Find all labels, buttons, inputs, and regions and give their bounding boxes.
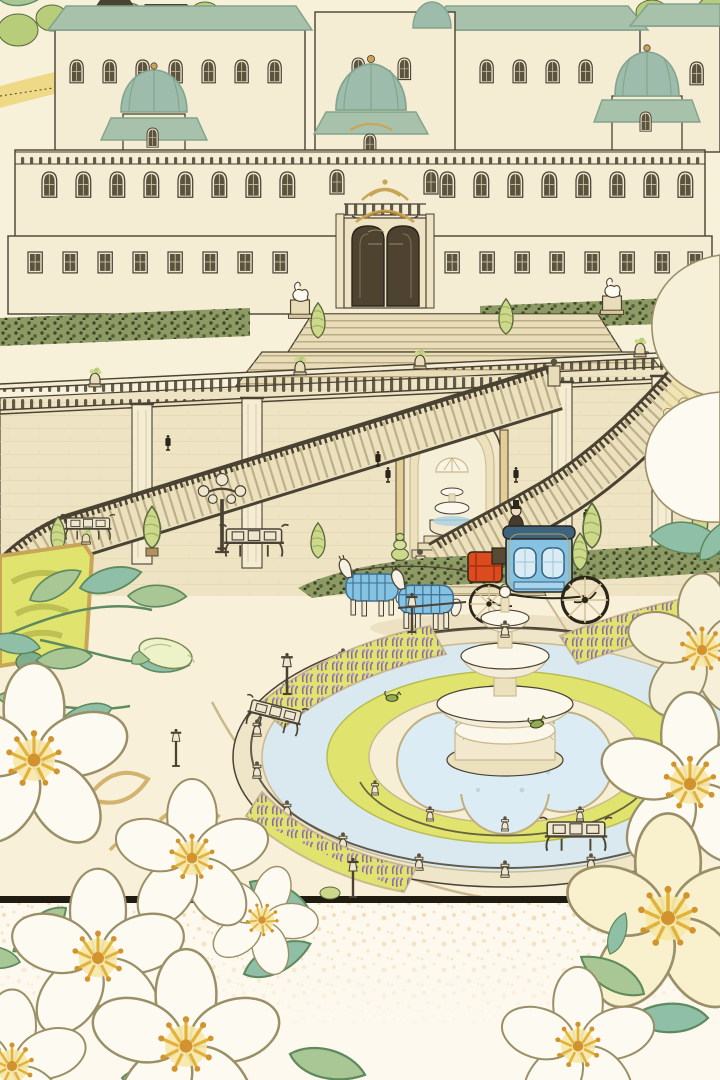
illustration-canvas [0,0,720,1080]
webtoon-panel [0,0,720,1080]
dome-center [314,2,455,154]
rear-wheel [562,577,607,622]
palace-entrance [336,211,434,308]
edge-bush [320,887,340,899]
